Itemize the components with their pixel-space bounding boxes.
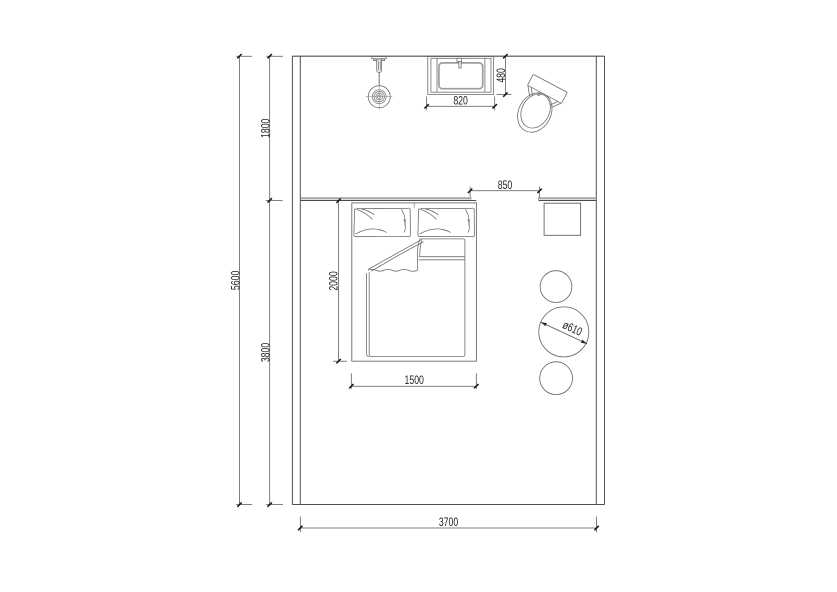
svg-text:850: 850 bbox=[498, 180, 513, 193]
svg-text:2000: 2000 bbox=[328, 271, 341, 291]
svg-text:5600: 5600 bbox=[230, 271, 243, 291]
svg-text:ø610: ø610 bbox=[560, 319, 583, 339]
svg-text:1800: 1800 bbox=[260, 118, 273, 138]
svg-text:820: 820 bbox=[453, 95, 468, 108]
svg-text:1500: 1500 bbox=[405, 375, 425, 388]
svg-text:480: 480 bbox=[496, 68, 509, 83]
svg-text:3800: 3800 bbox=[260, 343, 273, 363]
svg-text:3700: 3700 bbox=[439, 517, 459, 530]
